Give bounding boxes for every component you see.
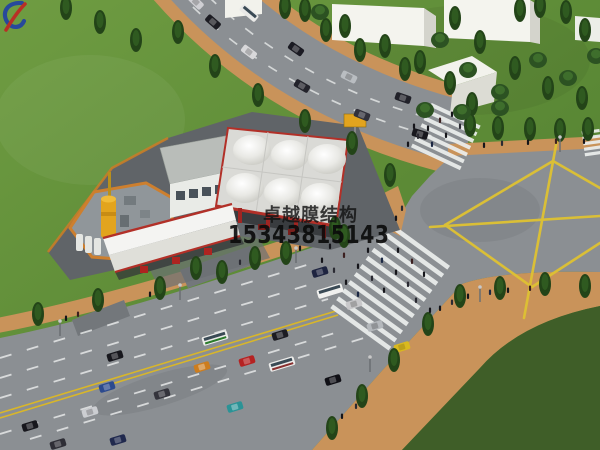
- rendering-canvas: 卓越膜结构 15343815143: [0, 0, 600, 450]
- fuel-dispenser: [140, 266, 148, 273]
- scene: [0, 0, 600, 450]
